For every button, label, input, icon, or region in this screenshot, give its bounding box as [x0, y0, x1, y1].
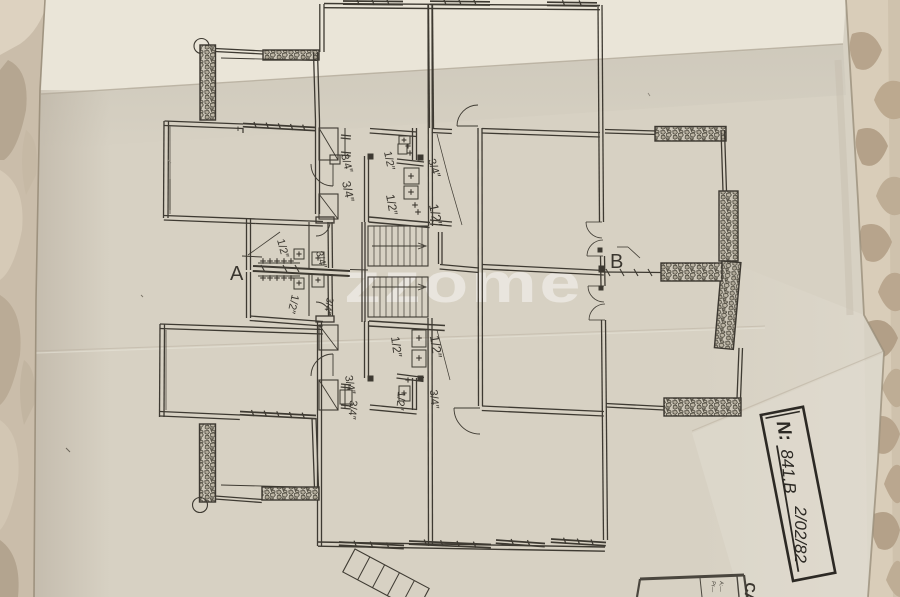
svg-text:N:: N:	[772, 419, 796, 443]
svg-text:1/2″: 1/2″	[427, 334, 445, 359]
svg-text:3/4″: 3/4″	[345, 400, 359, 420]
svg-text:A: A	[230, 263, 244, 285]
svg-text:CA: CA	[741, 582, 759, 597]
svg-text:841.B: 841.B	[777, 449, 800, 495]
svg-text:1/2″: 1/2″	[393, 391, 407, 411]
svg-text:A:—: A:—	[717, 581, 724, 593]
svg-text:3/4″: 3/4″	[427, 389, 441, 409]
svg-text:1/2″: 1/2″	[388, 335, 405, 358]
svg-text:Pr—: Pr—	[709, 581, 716, 593]
svg-text:2/02/82: 2/02/82	[791, 505, 810, 563]
svg-text:B: B	[610, 251, 623, 273]
